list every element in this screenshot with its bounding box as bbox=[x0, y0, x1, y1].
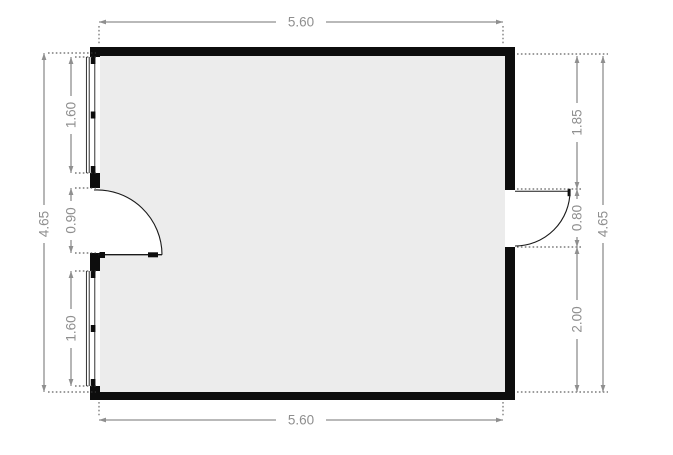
window-left-lower[interactable] bbox=[86, 271, 101, 386]
dimension-left-window-lower: 1.60 bbox=[64, 271, 79, 386]
dimension-right-door: 0.80 bbox=[570, 189, 585, 247]
door-leaf-tip-tick bbox=[148, 252, 158, 257]
dimension-right-upper-wall: 1.85 bbox=[570, 56, 585, 189]
door-swing-arc bbox=[515, 191, 570, 246]
wall-left-corner-bottom[interactable] bbox=[90, 386, 100, 400]
dim-label-bottom-width: 5.60 bbox=[288, 413, 314, 428]
floorplan-viewport: 5.60 5.60 4.65 1.60 0.90 1.60 1.85 0.80 bbox=[0, 0, 673, 455]
window-mullion-tick bbox=[91, 379, 96, 386]
dimension-left-height: 4.65 bbox=[37, 53, 52, 392]
dim-label-left-door: 0.90 bbox=[64, 207, 79, 233]
wall-right-lower[interactable] bbox=[505, 247, 515, 400]
dim-label-right-upper-wall: 1.85 bbox=[570, 109, 585, 135]
dimension-top-width: 5.60 bbox=[99, 15, 503, 30]
dimension-left-door: 0.90 bbox=[64, 188, 79, 253]
door-right[interactable] bbox=[515, 189, 571, 246]
window-mullion-tick bbox=[91, 112, 96, 119]
wall-left-between-door-window[interactable] bbox=[90, 253, 100, 271]
window-mullion-tick bbox=[91, 57, 96, 64]
dim-label-right-door: 0.80 bbox=[570, 205, 585, 231]
wall-left-corner-top[interactable] bbox=[90, 47, 100, 57]
dimension-right-height: 4.65 bbox=[596, 56, 611, 392]
dim-label-left-height: 4.65 bbox=[37, 211, 52, 237]
dimension-right-lower-wall: 2.00 bbox=[570, 247, 585, 392]
window-mullion-tick bbox=[91, 271, 96, 278]
window-mullion-tick bbox=[91, 325, 96, 332]
wall-right-upper[interactable] bbox=[505, 47, 515, 190]
dim-label-left-window-upper: 1.60 bbox=[64, 102, 79, 128]
dim-label-top-width: 5.60 bbox=[288, 15, 314, 30]
dimension-left-window-upper: 1.60 bbox=[64, 57, 79, 173]
wall-top[interactable] bbox=[90, 47, 515, 56]
dim-label-right-height: 4.65 bbox=[596, 211, 611, 237]
window-mullion-tick bbox=[91, 166, 96, 173]
window-left-upper[interactable] bbox=[86, 57, 101, 173]
floor-plan-canvas: 5.60 5.60 4.65 1.60 0.90 1.60 1.85 0.80 bbox=[0, 0, 673, 455]
dim-label-left-window-lower: 1.60 bbox=[64, 315, 79, 341]
room-floor[interactable] bbox=[100, 56, 505, 392]
wall-bottom[interactable] bbox=[90, 392, 515, 400]
door-hinge-block bbox=[100, 252, 106, 258]
wall-left-between-window-door[interactable] bbox=[90, 173, 100, 188]
dimension-bottom-width: 5.60 bbox=[99, 413, 503, 428]
dim-label-right-lower-wall: 2.00 bbox=[570, 306, 585, 332]
